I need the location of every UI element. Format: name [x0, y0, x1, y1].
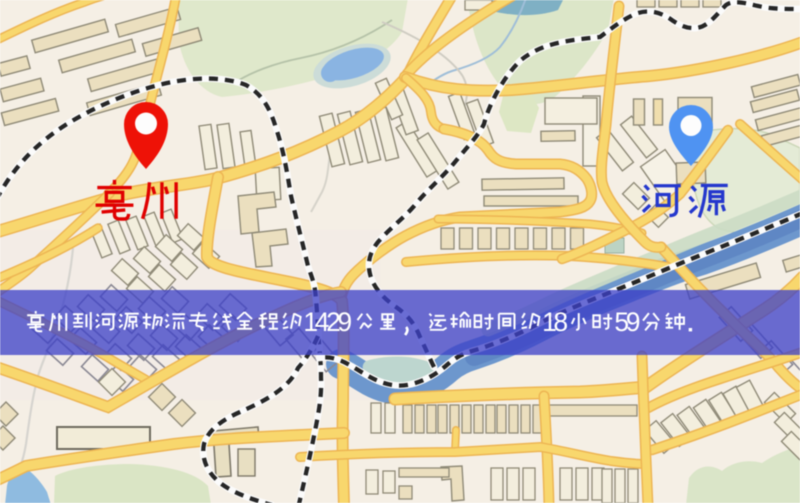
- svg-text:59: 59: [614, 307, 639, 337]
- svg-text:18: 18: [542, 307, 567, 337]
- svg-text:1429: 1429: [303, 307, 351, 337]
